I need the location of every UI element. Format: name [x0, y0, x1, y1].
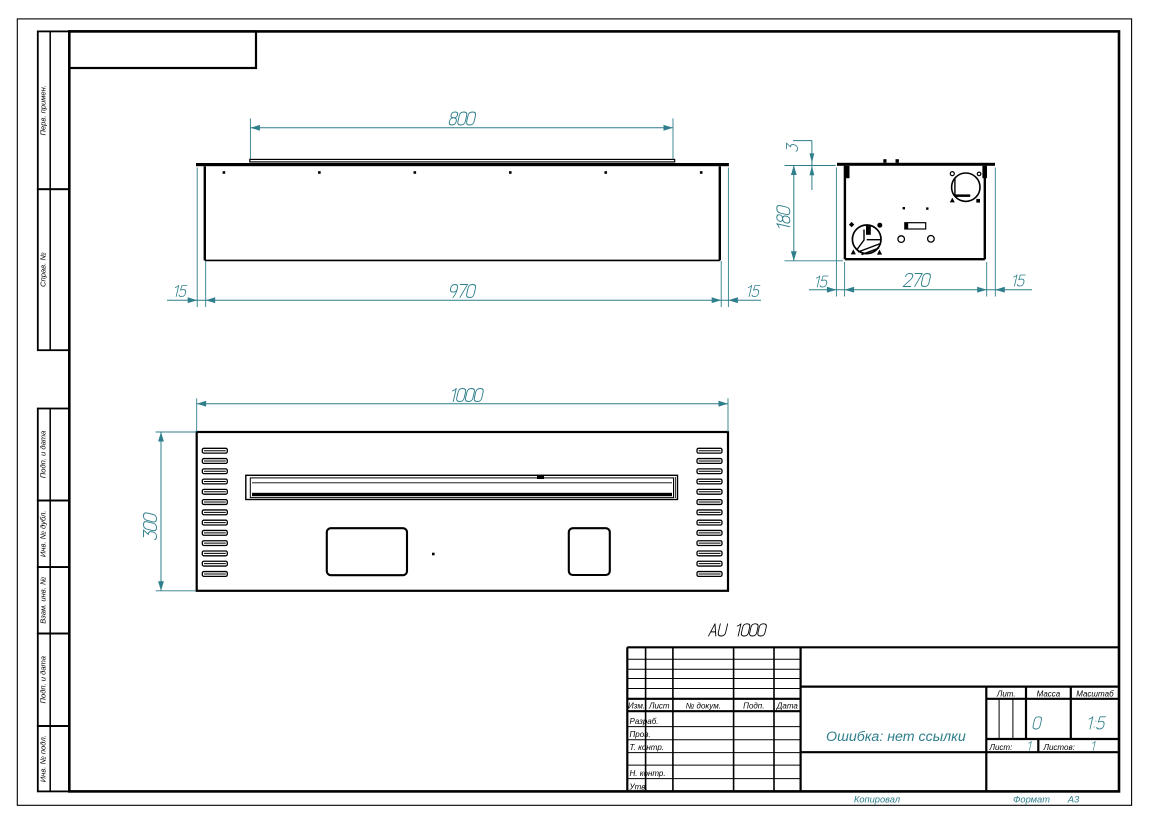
- svg-text:Изм.: Изм.: [628, 702, 645, 711]
- svg-text:Ошибка: нет ссылки: Ошибка: нет ссылки: [826, 729, 966, 745]
- svg-text:Подп. и дата: Подп. и дата: [39, 656, 48, 704]
- svg-text:Листов:: Листов:: [1043, 743, 1075, 752]
- svg-text:Масштаб: Масштаб: [1076, 690, 1114, 699]
- svg-text:Подп. и дата: Подп. и дата: [39, 431, 48, 479]
- svg-text:Лит.: Лит.: [996, 690, 1016, 699]
- svg-text:Разраб.: Разраб.: [630, 717, 659, 726]
- svg-text:Лист: Лист: [648, 702, 670, 711]
- svg-text:Инв. № дубл.: Инв. № дубл.: [39, 510, 48, 557]
- svg-text:Дата: Дата: [776, 702, 799, 711]
- svg-text:Пров.: Пров.: [630, 730, 651, 739]
- svg-text:Взам. инв. №: Взам. инв. №: [39, 577, 48, 624]
- svg-text:A3: A3: [1067, 795, 1080, 806]
- svg-text:Подп.: Подп.: [743, 702, 764, 711]
- svg-text:Утв.: Утв.: [629, 782, 648, 791]
- svg-text:№ докум.: № докум.: [686, 702, 721, 711]
- svg-text:Масса: Масса: [1037, 690, 1061, 699]
- svg-text:Копировал: Копировал: [854, 795, 901, 805]
- svg-text:Н. контр.: Н. контр.: [630, 769, 666, 778]
- svg-text:Справ. №: Справ. №: [39, 252, 48, 287]
- svg-text:Инв. № подл.: Инв. № подл.: [39, 735, 48, 782]
- svg-text:Т. контр.: Т. контр.: [630, 743, 665, 752]
- svg-text:Лист:: Лист:: [989, 743, 1013, 752]
- svg-text:Перв. примен.: Перв. примен.: [39, 85, 48, 135]
- svg-text:Формат: Формат: [1013, 795, 1050, 805]
